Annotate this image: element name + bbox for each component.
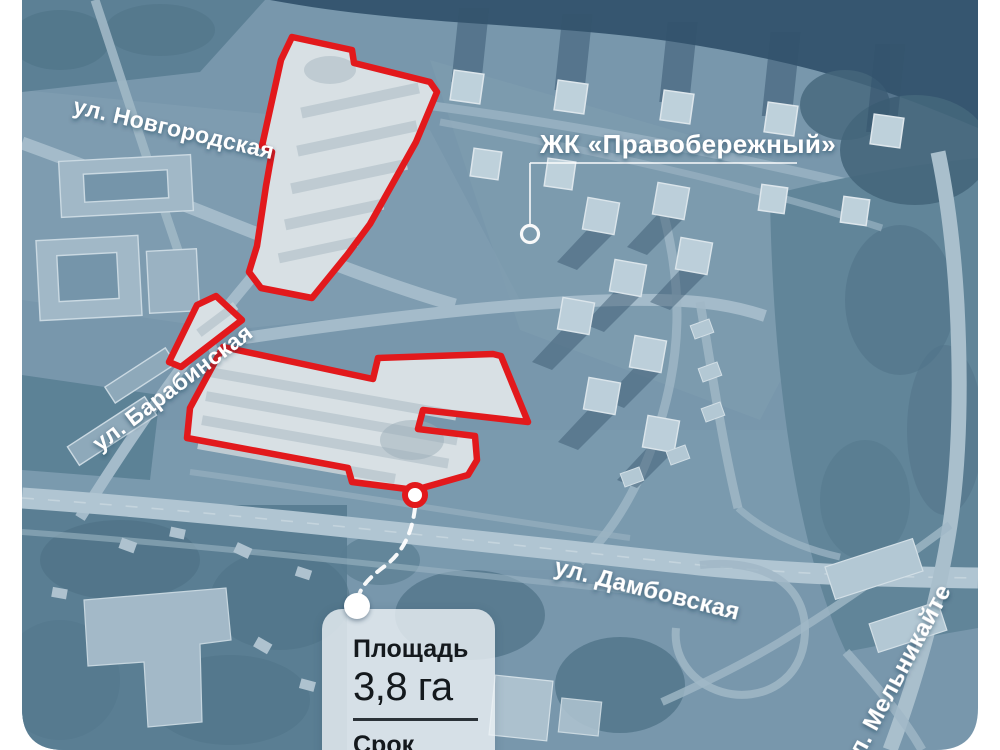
area-label: Площадь [353, 635, 495, 663]
infographic-canvas: ул. Новгородская ул. Барабинская ул. Дам… [0, 0, 1000, 750]
satellite-map: ул. Новгородская ул. Барабинская ул. Дам… [0, 0, 1000, 750]
info-card: Площадь 3,8 га Срок [322, 609, 495, 750]
card-divider [353, 718, 478, 721]
complex-label: ЖК «Правобережный» [539, 129, 836, 159]
area-value: 3,8 га [353, 665, 495, 709]
boundary-marker-icon [405, 485, 425, 505]
card-pin-icon [344, 593, 370, 619]
term-label: Срок [353, 731, 495, 750]
